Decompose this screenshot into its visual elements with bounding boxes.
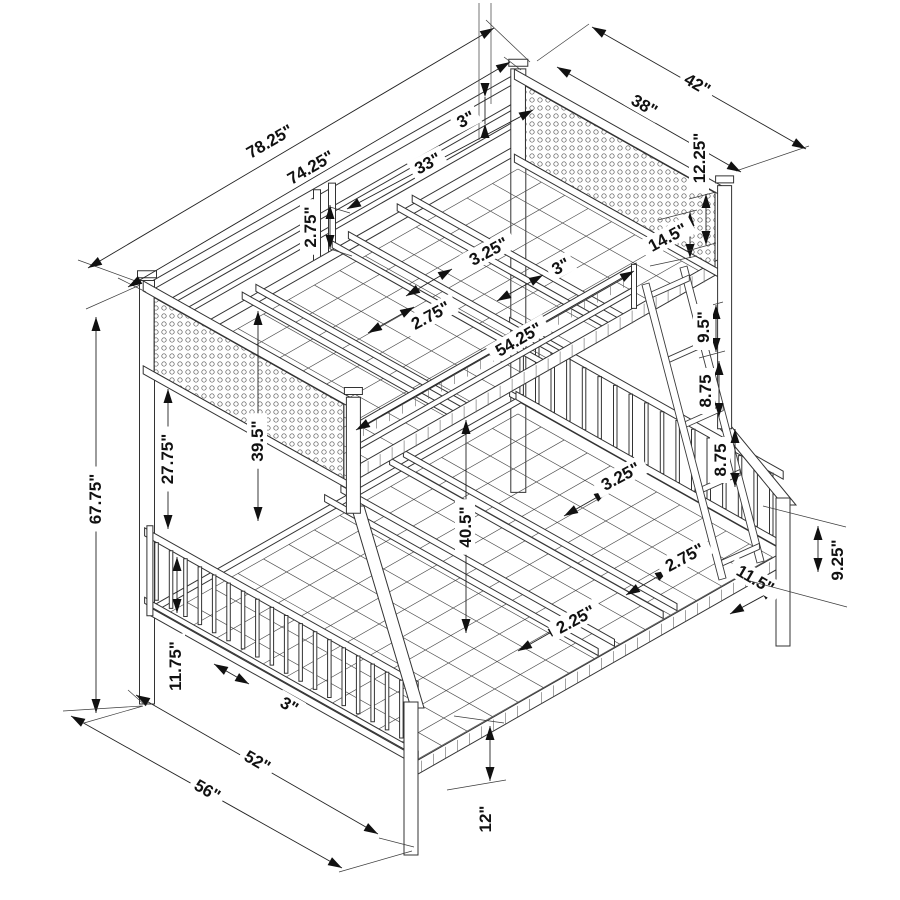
dimension-label: 78.25" — [243, 121, 296, 163]
dimension-label: 8.75 — [711, 443, 730, 476]
dimension-6: 3" — [497, 251, 577, 301]
dimension-label: 3.25" — [598, 459, 643, 495]
dimension-3: 3" — [449, 3, 491, 140]
dimension-label: 67.75" — [86, 474, 105, 525]
dimension-14: 8.75 — [695, 361, 724, 417]
dimension-label: 27.75" — [158, 434, 177, 485]
dimension-22: 67.75" — [84, 285, 143, 723]
dimension-label: 9.25" — [828, 539, 847, 580]
diagram-canvas: 78.25"74.25"33"3"2.75"3.25"3"2.75"54.25"… — [0, 0, 900, 900]
dimension-8: 54.25" — [356, 271, 634, 430]
dimension-15: 8.75 — [710, 429, 740, 487]
dimension-label: 9.5" — [694, 311, 713, 343]
dimension-label: 12.25" — [690, 133, 709, 184]
bunk-bed-dimension-diagram: 78.25"74.25"33"3"2.75"3.25"3"2.75"54.25"… — [0, 0, 900, 900]
dimension-18: 2.25" — [518, 597, 605, 651]
dimension-label: 11.75" — [166, 641, 185, 691]
dimension-label: 8.75 — [696, 374, 715, 407]
dimension-label: 40.5" — [456, 506, 475, 547]
dimension-label: 39.5" — [248, 420, 267, 461]
dimension-label: 2.75" — [301, 206, 320, 247]
dimension-label: 12" — [476, 806, 495, 833]
dimension-label: 2.75" — [662, 540, 707, 576]
dimension-21: 27.75" — [157, 389, 177, 529]
